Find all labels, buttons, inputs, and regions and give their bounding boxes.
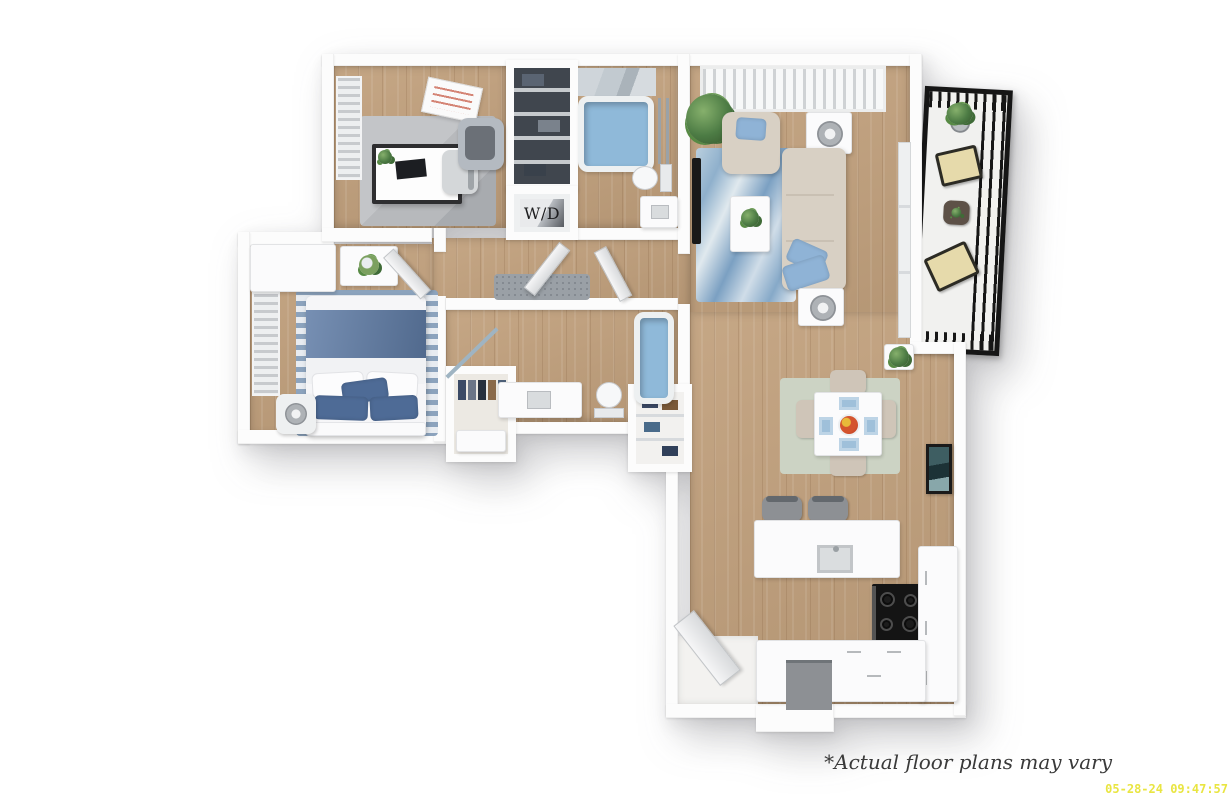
patio-chair: [935, 144, 984, 187]
framed-art: [926, 444, 952, 494]
apartment-floorplan: W/D: [0, 0, 1231, 807]
dresser-flowers: [359, 255, 379, 275]
bathroom1-vanity: [640, 196, 678, 228]
faucet: [833, 546, 839, 552]
side-table: [798, 288, 844, 326]
stored-clothes: [522, 74, 544, 86]
closet-dresser: [456, 430, 506, 452]
patio-table: [943, 200, 970, 225]
coffee-table-plant: [741, 209, 759, 227]
armchair: [722, 112, 780, 174]
wall: [574, 228, 686, 240]
toilet-tank: [660, 164, 672, 192]
bed-pillow-blue: [369, 395, 418, 421]
drawer-handle: [867, 675, 881, 677]
monitor: [395, 158, 427, 179]
drawer-handle: [925, 571, 927, 585]
bathtub-2: [634, 312, 674, 404]
disclaimer-text: *Actual floor plans may vary: [824, 750, 1112, 774]
toilet-bowl: [596, 382, 622, 408]
washer-dryer-closet: W/D: [506, 186, 578, 240]
sofa-seam: [786, 194, 834, 196]
dining-table: [814, 392, 882, 456]
snake-plant: [889, 347, 909, 367]
shoes: [662, 446, 678, 456]
shelf: [636, 414, 684, 417]
bed: [306, 296, 426, 436]
toilet-bowl: [632, 166, 658, 190]
patio-chair: [923, 240, 980, 292]
drawer-handle: [847, 651, 861, 653]
toilet-2: [594, 382, 624, 420]
hanging-clothes: [478, 380, 486, 400]
living-right-windows: [898, 142, 911, 338]
shoes: [644, 422, 660, 432]
patio-table-plant: [951, 207, 962, 218]
art-detail: [430, 85, 474, 115]
nightstand-lamp: [285, 403, 307, 425]
toilet-1: [632, 160, 676, 194]
wall: [910, 54, 922, 354]
desk-plant: [378, 150, 392, 164]
towel-bar: [666, 98, 669, 164]
washer-dryer-label: W/D: [524, 204, 560, 223]
dishwasher: [786, 660, 832, 710]
wall: [666, 464, 678, 716]
wall: [678, 54, 690, 254]
bedroom-window-blinds: [252, 292, 280, 396]
wall: [678, 304, 690, 396]
window-mullion: [899, 205, 910, 208]
balcony: [911, 86, 1013, 356]
drawer-handle: [925, 621, 927, 635]
bathroom2-vanity: [498, 382, 582, 418]
wall: [322, 228, 432, 242]
toilet-tank: [594, 408, 624, 418]
window-mullion: [899, 271, 910, 274]
dining-chair: [830, 370, 866, 394]
kitchen-counter-bottom: [756, 640, 926, 702]
stored-clothes: [538, 120, 560, 132]
sink: [651, 205, 669, 219]
kitchen-sink: [817, 545, 853, 573]
nightstand: [276, 394, 316, 434]
burner: [902, 616, 918, 632]
placemat: [839, 397, 859, 410]
table-lamp: [810, 295, 836, 321]
balcony-railing: [970, 94, 1007, 351]
shower-marble-wall: [578, 68, 656, 96]
burner: [904, 594, 917, 607]
burner: [880, 618, 893, 631]
placemat: [864, 417, 878, 435]
sink: [527, 391, 551, 409]
wall: [512, 422, 642, 434]
headboard: [306, 422, 426, 436]
stored-clothes: [524, 164, 546, 176]
armchair-pillow: [735, 117, 766, 141]
wall: [322, 54, 922, 66]
stool-back: [766, 496, 798, 502]
accent-chair: [458, 118, 504, 170]
towel-bar: [658, 98, 661, 164]
fruit-bowl: [840, 416, 858, 434]
burner: [880, 592, 895, 607]
bar-stool: [762, 496, 802, 522]
chair-cushion: [465, 126, 495, 160]
bed-duvet: [306, 310, 426, 358]
hanging-clothes: [458, 380, 466, 400]
stool-back: [812, 496, 844, 502]
table-lamp: [817, 121, 843, 147]
hanging-clothes: [468, 380, 476, 400]
bar-stool: [808, 496, 848, 522]
linen-closet: [506, 60, 578, 192]
bed-pillow-blue: [314, 395, 369, 421]
wall: [238, 232, 250, 444]
wall: [322, 54, 334, 244]
floorplan-page: W/D: [0, 0, 1231, 807]
sofa: [782, 148, 846, 290]
tv: [692, 158, 701, 244]
placemat: [819, 417, 833, 435]
wall: [434, 228, 446, 252]
bedroom-builtin: [250, 244, 336, 292]
oven-handle: [872, 586, 876, 640]
timestamp-watermark: 05-28-24 09:47:57: [1105, 782, 1228, 796]
hanging-clothes: [488, 380, 496, 400]
kitchen-island: [754, 520, 900, 578]
shelf: [636, 438, 684, 441]
wall-planter: [884, 344, 914, 370]
drawer-handle: [887, 651, 901, 653]
placemat: [839, 438, 859, 451]
office-window-blinds: [336, 76, 362, 180]
coffee-table: [730, 196, 770, 252]
